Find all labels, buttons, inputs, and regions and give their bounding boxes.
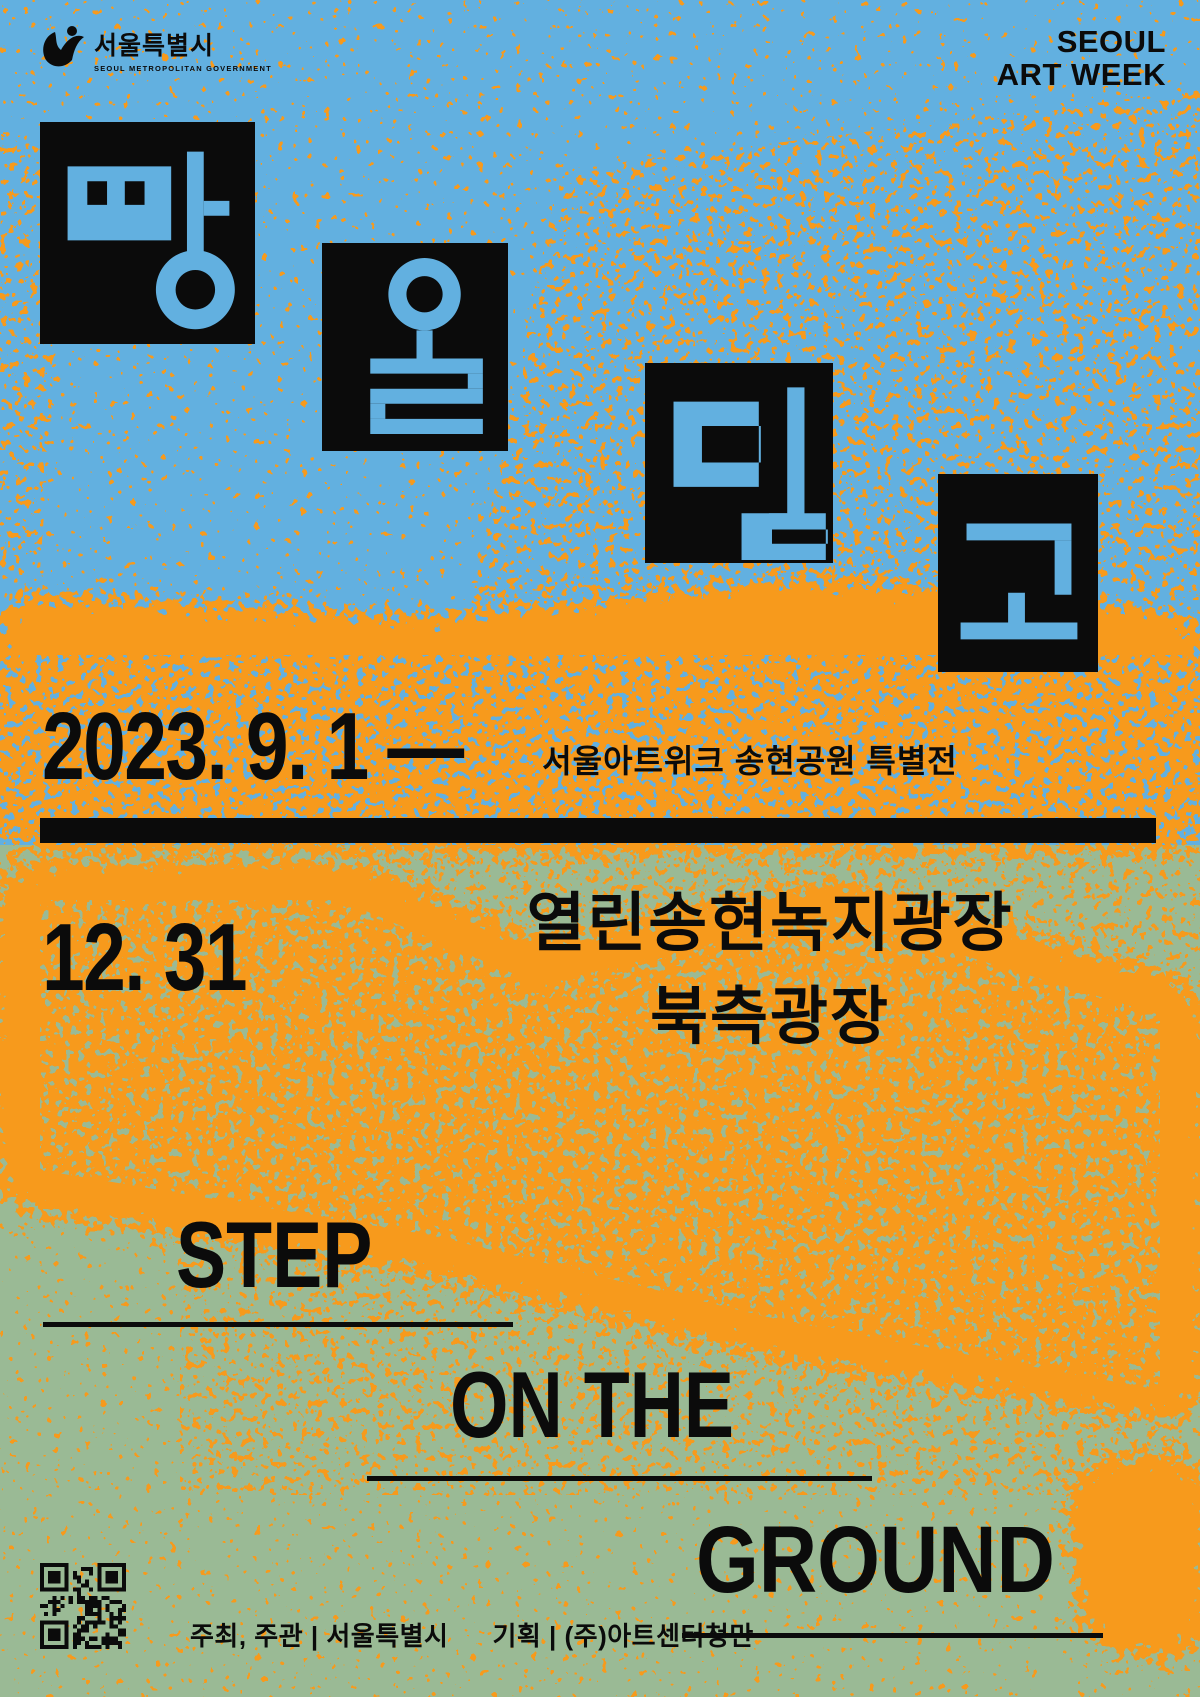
hangul-glyph-did [645,363,833,563]
credit-planning: 기획 | (주)아트센터청만 [492,1616,753,1653]
title-tile-eul: 을 [322,243,508,451]
title-tile-did: 딛 [645,363,833,563]
artweek-line2: ART WEEK [997,59,1166,92]
venue-line1: 열린송현녹지광장 [385,872,1155,964]
seoul-government-logo: 서울특별시 SEOUL METROPOLITAN GOVERNMENT [36,24,272,76]
venue-line2: 북측광장 [385,966,1155,1057]
underline-onthe [367,1476,872,1481]
underline-step [43,1322,513,1327]
hangul-glyph-ttang [40,122,255,344]
seoul-art-week-label: SEOUL ART WEEK [997,26,1166,92]
texture-ground-blob [1070,1455,1200,1660]
logo-english-name: SEOUL METROPOLITAN GOVERNMENT [94,64,272,73]
logo-korean-name: 서울특별시 [94,34,272,59]
hangul-glyph-go [938,474,1098,672]
title-tile-ttang: 땅 [40,122,255,344]
artweek-line1: SEOUL [997,26,1166,59]
poster: 서울특별시 SEOUL METROPOLITAN GOVERNMENT SEOU… [0,0,1200,1697]
dates-line1: 2023. 9. 1 — [42,694,463,800]
exhibition-subtitle: 서울아트위크 송현공원 특별전 [470,736,1030,782]
seoul-logo-mark [36,24,86,76]
credit-host: 주최, 주관 | 서울특별시 [190,1616,448,1653]
title-tile-go: 고 [938,474,1098,672]
title-en-onthe: ON THE [450,1358,734,1452]
qr-code [40,1556,126,1656]
title-en-step: STEP [176,1208,372,1302]
hangul-glyph-eul [322,243,508,451]
credits: 주최, 주관 | 서울특별시 기획 | (주)아트센터청만 [190,1616,754,1653]
divider-bar [40,818,1156,843]
title-en-ground: GROUND [696,1513,1055,1608]
